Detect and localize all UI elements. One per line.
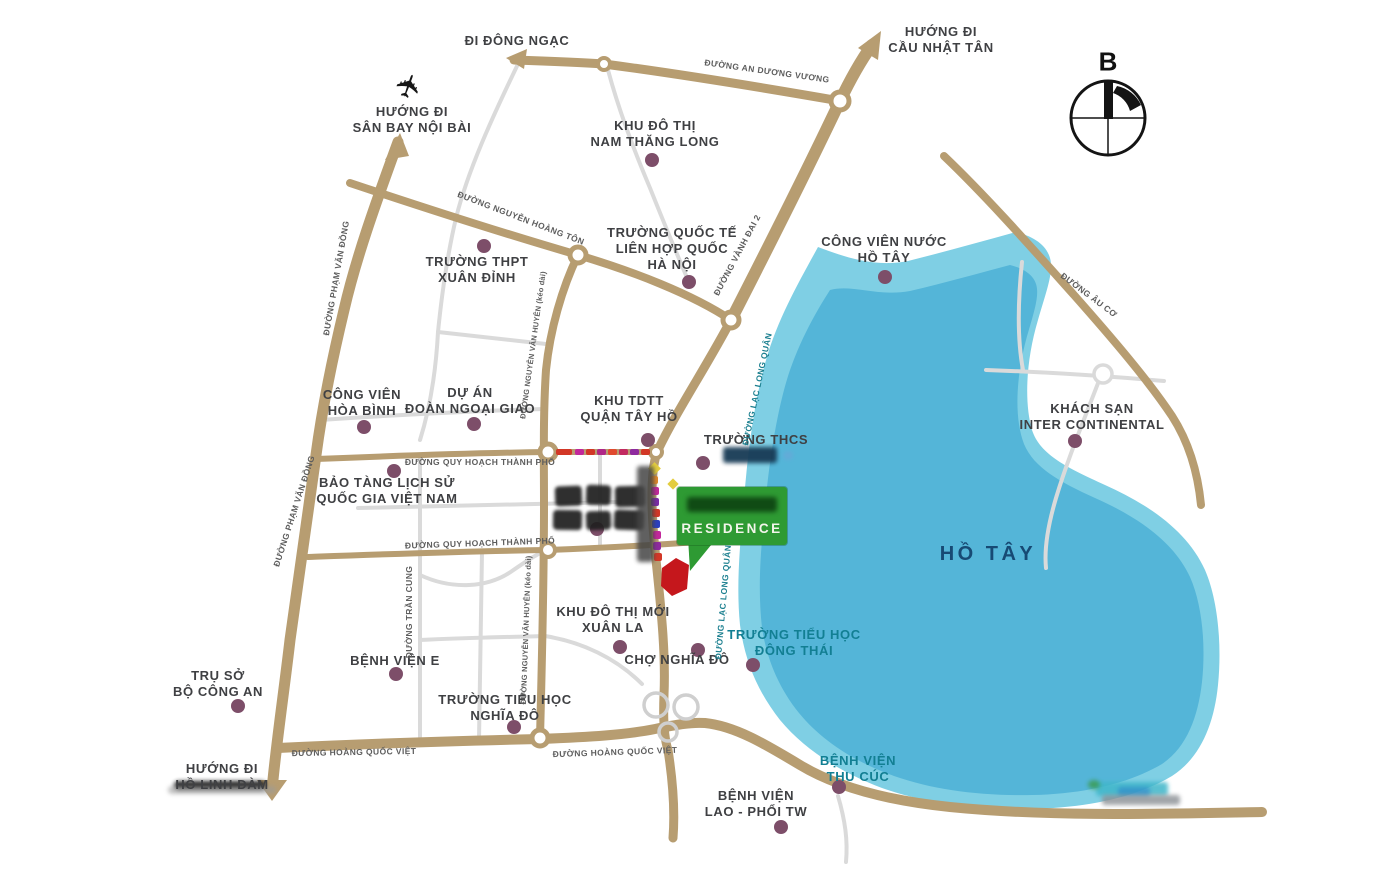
label-nghia-do: TRƯỜNG TIỂU HỌC NGHĨA ĐÔ: [438, 692, 571, 724]
censored-thcs-dot: [783, 451, 793, 460]
label-huong-di-ho-linh-dam: HƯỚNG ĐI HỒ LINH ĐÀM: [175, 761, 268, 793]
label-ho-tay: HỒ TÂY: [940, 542, 1037, 566]
censored-watermark-shadow: [1102, 795, 1180, 805]
label-doan-ngoai-giao: DỰ ÁN ĐOÀN NGOẠI GIAO: [405, 385, 535, 417]
label-benh-vien-e: BỆNH VIỆN E: [350, 653, 440, 669]
censored-thcs-name: [723, 447, 777, 463]
label-thu-cuc: BỆNH VIỆN THU CÚC: [820, 753, 896, 785]
label-di-dong-ngac: ĐI ĐÔNG NGẠC: [465, 33, 570, 49]
poi-dot-bo-cong-an: [231, 699, 245, 713]
censored-watermark-green: [1088, 780, 1100, 789]
poi-dot-truong-thcs: [696, 456, 710, 470]
lake-ho-tay: [738, 232, 1219, 809]
label-cong-vien-hoa-binh: CÔNG VIÊN HÒA BÌNH: [323, 387, 401, 419]
label-bao-tang: BẢO TÀNG LỊCH SỬ QUỐC GIA VIỆT NAM: [316, 475, 457, 507]
poi-dot-nam-thang-long: [645, 153, 659, 167]
label-dong-thai: TRƯỜNG TIỂU HỌC ĐÔNG THÁI: [727, 627, 860, 659]
poi-dot-thpt-xuan-dinh: [477, 239, 491, 253]
roadlabel-tran-cung: ĐƯỜNG TRẦN CUNG: [404, 566, 414, 659]
project-sign-label: RESIDENCE: [677, 521, 787, 536]
compass-icon: [1071, 81, 1145, 155]
poi-dot-lao-phoi: [774, 820, 788, 834]
censored-project-name: [687, 497, 777, 512]
project-sign: RESIDENCE: [677, 487, 787, 545]
label-truong-quoc-te: TRƯỜNG QUỐC TẾ LIÊN HỢP QUỐC HÀ NỘI: [607, 225, 737, 273]
poi-dot-benh-vien-e: [389, 667, 403, 681]
label-bo-cong-an: TRỤ SỞ BỘ CÔNG AN: [173, 668, 263, 700]
road-an-duong-vuong: [514, 60, 840, 101]
label-khu-tdtt: KHU TDTT QUẬN TÂY HỒ: [580, 393, 677, 425]
censored-strip: [637, 466, 654, 562]
lake-inner-water: [760, 265, 1204, 795]
location-map: RESIDENCE ✈ B ĐI ĐÔNG NGẠC HƯỚNG ĐI SÂN …: [0, 0, 1380, 875]
label-truong-thcs: TRƯỜNG THCS: [704, 432, 808, 448]
label-huong-di-cau-nhat-tan: HƯỚNG ĐI CẦU NHẬT TÂN: [888, 24, 993, 56]
label-cong-vien-nuoc: CÔNG VIÊN NƯỚC HỒ TÂY: [821, 234, 947, 266]
roadlabel-quy-hoach-1: ĐƯỜNG QUY HOẠCH THÀNH PHỐ: [405, 457, 555, 467]
poi-dot-truong-quoc-te: [682, 275, 696, 289]
label-lao-phoi: BỆNH VIỆN LAO - PHỔI TW: [705, 788, 807, 820]
project-sign-tail: [684, 540, 712, 573]
label-huong-di-san-bay: HƯỚNG ĐI SÂN BAY NỘI BÀI: [353, 104, 472, 136]
poi-dot-cong-vien-hoa-binh: [357, 420, 371, 434]
label-xuan-la: KHU ĐÔ THỊ MỚI XUÂN LA: [556, 604, 669, 636]
poi-dot-khu-tdtt: [641, 433, 655, 447]
poi-dot-intercontinental: [1068, 434, 1082, 448]
compass-north-letter: B: [1099, 47, 1118, 78]
label-thpt-xuan-dinh: TRƯỜNG THPT XUÂN ĐỈNH: [426, 254, 529, 286]
label-intercontinental: KHÁCH SẠN INTER CONTINENTAL: [1019, 401, 1164, 433]
road-pham-van-dong: [272, 142, 398, 790]
poi-dot-dong-thai: [746, 658, 760, 672]
poi-dot-cong-vien-nuoc: [878, 270, 892, 284]
poi-dot-doan-ngoai-giao: [467, 417, 481, 431]
label-nam-thang-long: KHU ĐÔ THỊ NAM THĂNG LONG: [591, 118, 720, 150]
